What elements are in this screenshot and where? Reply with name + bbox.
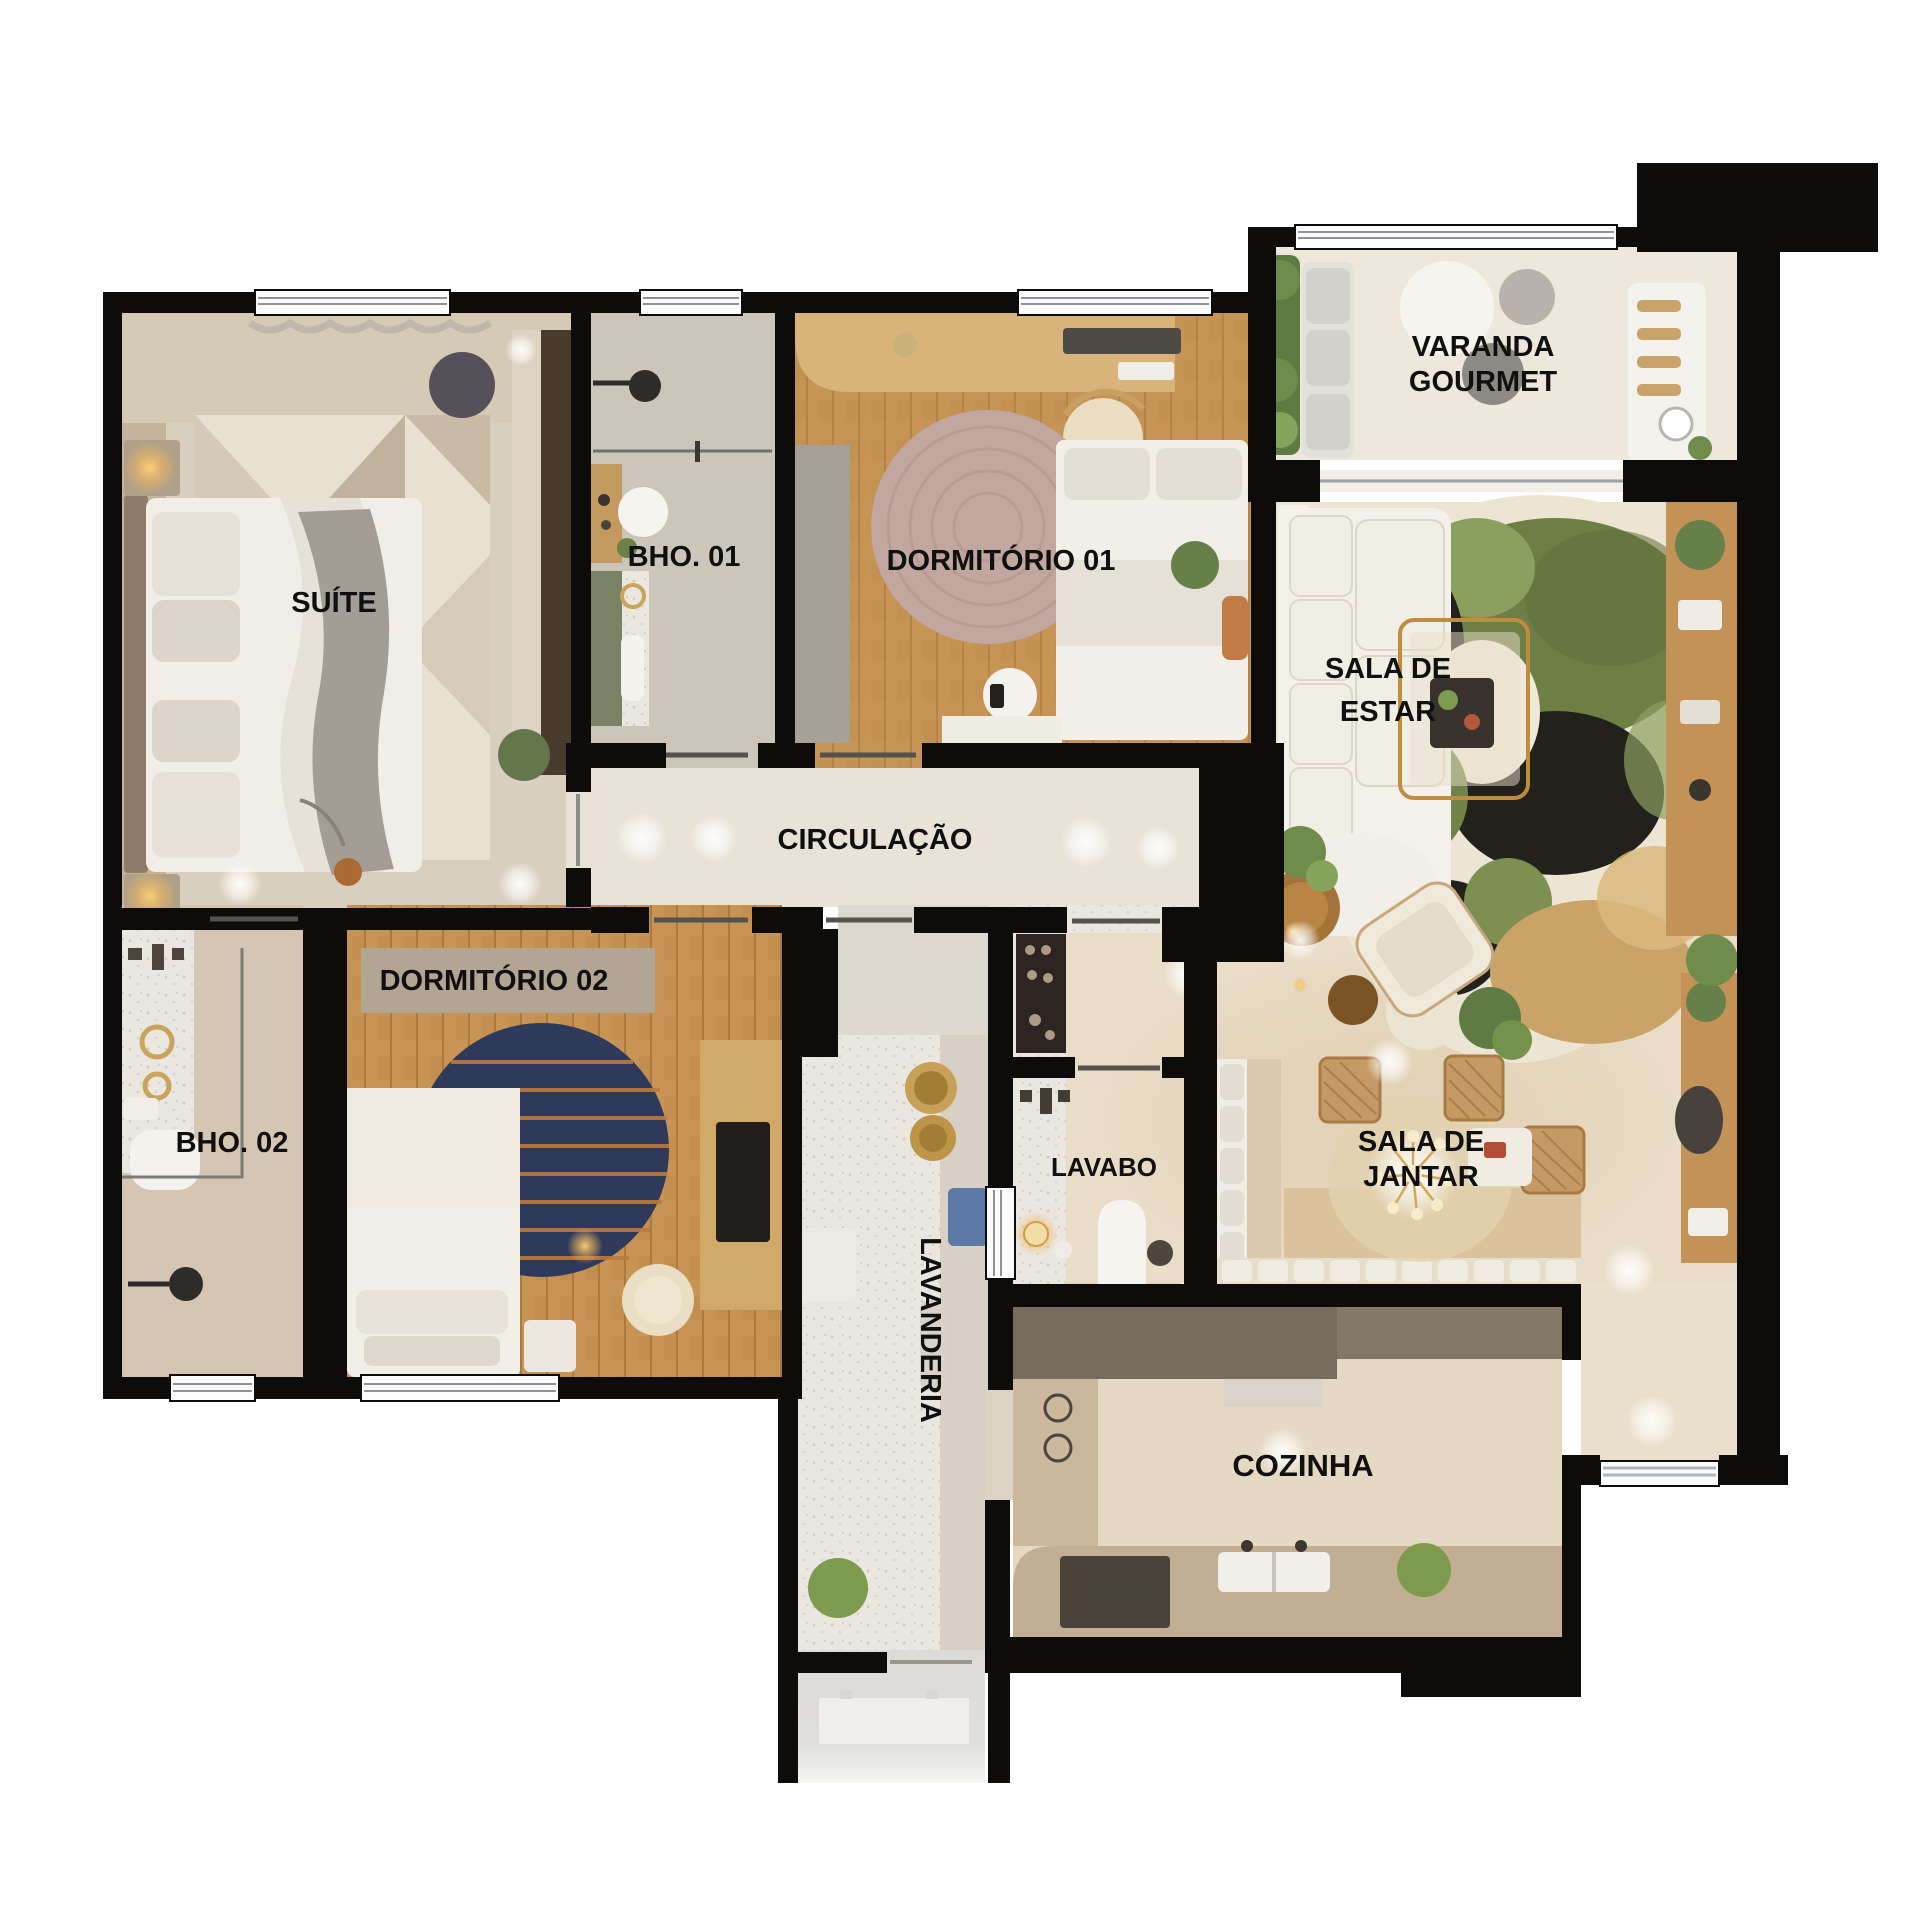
svg-text:VARANDA: VARANDA xyxy=(1412,331,1555,363)
svg-text:BHO. 01: BHO. 01 xyxy=(628,541,741,573)
svg-text:GOURMET: GOURMET xyxy=(1409,366,1558,398)
svg-text:JANTAR: JANTAR xyxy=(1363,1161,1479,1193)
svg-text:SUÍTE: SUÍTE xyxy=(291,585,376,619)
svg-text:SALA DE: SALA DE xyxy=(1358,1126,1484,1158)
svg-text:DORMITÓRIO 02: DORMITÓRIO 02 xyxy=(380,963,609,997)
svg-text:LAVANDERIA: LAVANDERIA xyxy=(914,1237,946,1423)
svg-text:SALA DE: SALA DE xyxy=(1325,653,1451,685)
svg-text:BHO. 02: BHO. 02 xyxy=(176,1127,289,1159)
svg-text:DORMITÓRIO 01: DORMITÓRIO 01 xyxy=(887,543,1116,577)
svg-text:LAVABO: LAVABO xyxy=(1051,1152,1157,1182)
svg-text:COZINHA: COZINHA xyxy=(1232,1448,1373,1483)
svg-text:ESTAR: ESTAR xyxy=(1340,696,1436,728)
svg-text:CIRCULAÇÃO: CIRCULAÇÃO xyxy=(778,822,973,856)
